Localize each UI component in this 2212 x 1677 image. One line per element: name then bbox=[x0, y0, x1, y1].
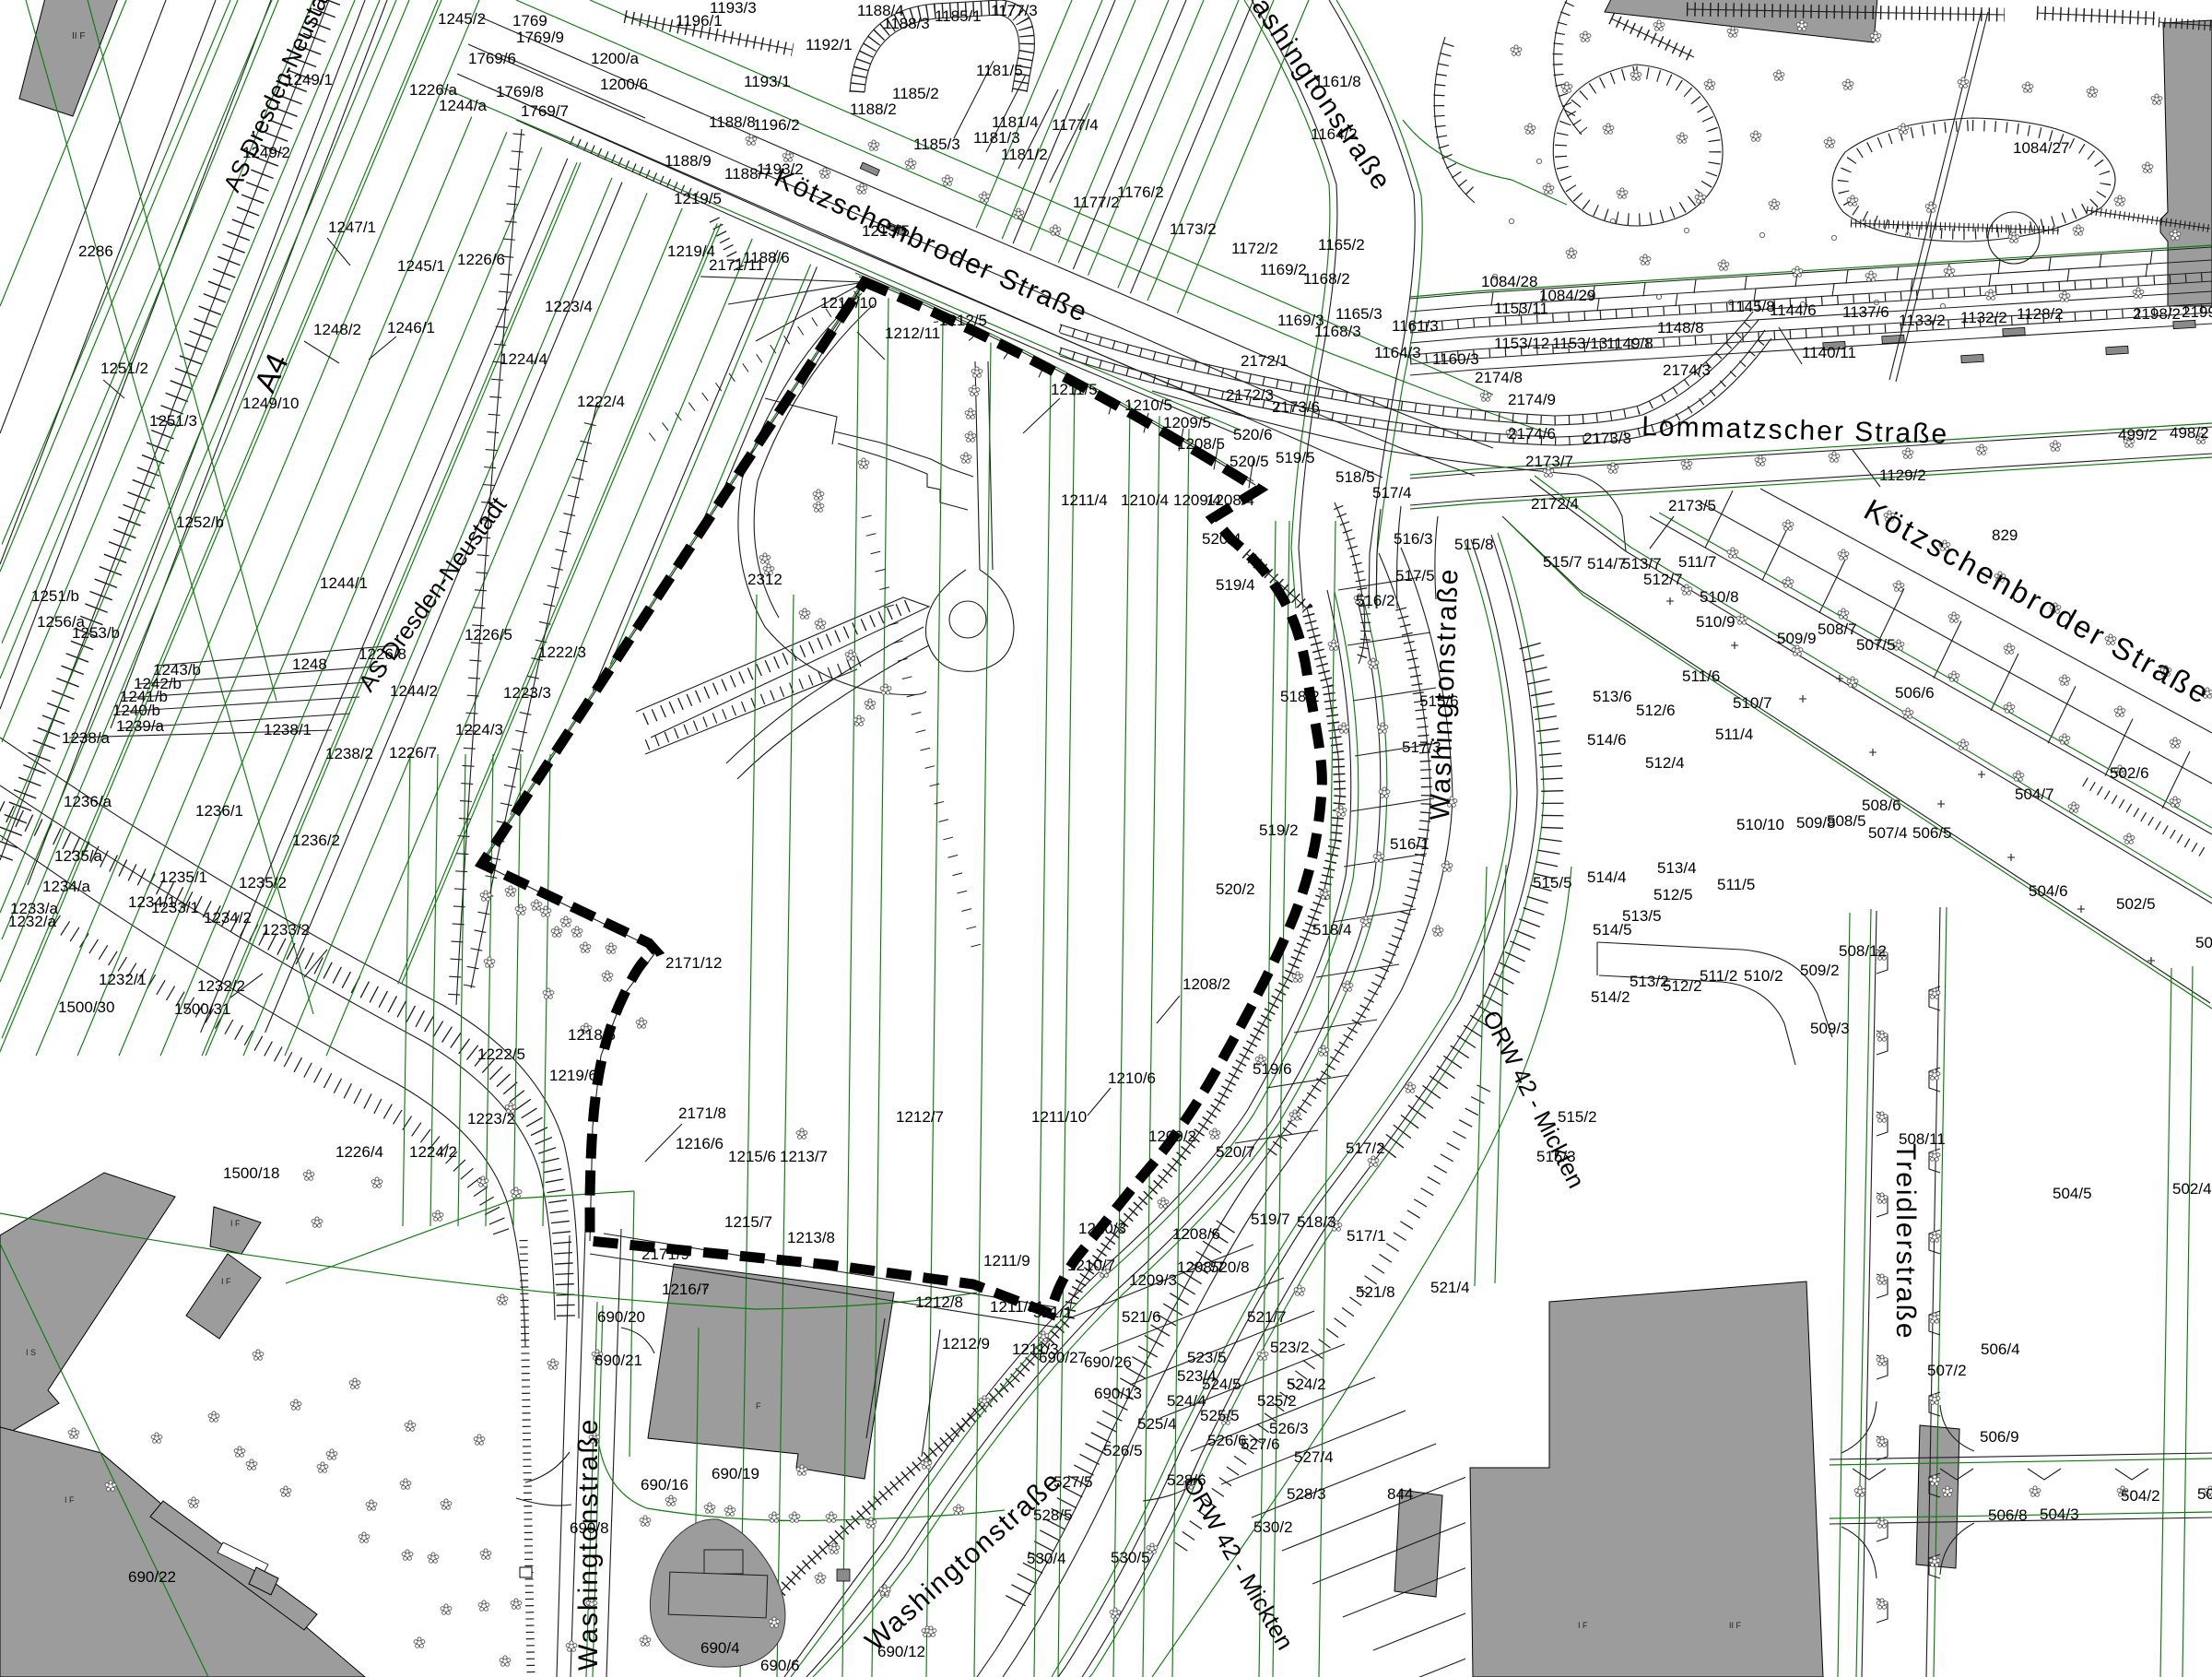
svg-text:1213/8: 1213/8 bbox=[787, 1229, 835, 1246]
svg-text:1185/3: 1185/3 bbox=[913, 136, 960, 153]
svg-text:515/7: 515/7 bbox=[1543, 553, 1583, 571]
svg-text:1212/5: 1212/5 bbox=[939, 312, 987, 329]
svg-text:2172/1: 2172/1 bbox=[1241, 352, 1288, 370]
svg-text:1500/31: 1500/31 bbox=[174, 1000, 230, 1018]
svg-text:1172/2: 1172/2 bbox=[1231, 240, 1278, 257]
svg-text:502/5: 502/5 bbox=[2116, 895, 2156, 913]
svg-text:1211/4: 1211/4 bbox=[1061, 491, 1108, 509]
svg-text:1188/9: 1188/9 bbox=[665, 152, 712, 170]
svg-text:1084/27: 1084/27 bbox=[2013, 139, 2069, 157]
svg-text:519/5: 519/5 bbox=[1276, 449, 1315, 466]
svg-text:516/2: 516/2 bbox=[1356, 592, 1395, 609]
svg-text:1209/3: 1209/3 bbox=[1129, 1271, 1177, 1289]
svg-text:527/5: 527/5 bbox=[1053, 1473, 1093, 1491]
svg-text:1235/2: 1235/2 bbox=[239, 874, 287, 892]
svg-text:507/4: 507/4 bbox=[1868, 824, 1908, 842]
svg-text:1208/6: 1208/6 bbox=[1172, 1225, 1220, 1243]
svg-text:1233/2: 1233/2 bbox=[262, 921, 310, 939]
svg-text:829: 829 bbox=[1992, 526, 2018, 544]
svg-text:507/5: 507/5 bbox=[1856, 636, 1896, 654]
svg-text:1224/3: 1224/3 bbox=[455, 721, 503, 738]
svg-text:1223/3: 1223/3 bbox=[503, 684, 551, 702]
svg-text:517/2: 517/2 bbox=[1346, 1140, 1385, 1157]
svg-text:1185/2: 1185/2 bbox=[892, 85, 939, 102]
svg-text:1249/10: 1249/10 bbox=[242, 395, 299, 412]
svg-text:1244/1: 1244/1 bbox=[320, 574, 368, 592]
svg-text:1248: 1248 bbox=[292, 655, 327, 673]
svg-text:1165/2: 1165/2 bbox=[1318, 236, 1365, 254]
svg-text:504/7: 504/7 bbox=[2015, 785, 2054, 803]
svg-text:521/6: 521/6 bbox=[1122, 1308, 1161, 1326]
svg-text:1128/2: 1128/2 bbox=[2017, 305, 2064, 323]
svg-text:1193/3: 1193/3 bbox=[710, 0, 757, 17]
svg-text:506/8: 506/8 bbox=[1988, 1506, 2028, 1524]
svg-text:2171/12: 2171/12 bbox=[665, 954, 722, 972]
svg-text:515/6: 515/6 bbox=[1419, 692, 1459, 710]
svg-text:525/2: 525/2 bbox=[1257, 1392, 1297, 1410]
svg-text:1181/2: 1181/2 bbox=[1001, 146, 1048, 163]
svg-text:2174/8: 2174/8 bbox=[1475, 369, 1523, 386]
svg-text:519/2: 519/2 bbox=[1259, 821, 1299, 839]
svg-text:502/6: 502/6 bbox=[2110, 764, 2149, 782]
svg-text:521/8: 521/8 bbox=[1356, 1283, 1395, 1301]
svg-text:1251/b: 1251/b bbox=[31, 587, 79, 605]
svg-text:1216/6: 1216/6 bbox=[676, 1135, 724, 1152]
svg-text:518/4: 518/4 bbox=[1312, 921, 1352, 939]
svg-text:1251/2: 1251/2 bbox=[100, 360, 148, 377]
svg-text:1222/4: 1222/4 bbox=[577, 393, 625, 410]
svg-text:1223/2: 1223/2 bbox=[467, 1110, 515, 1128]
svg-text:499/2: 499/2 bbox=[2118, 426, 2158, 443]
svg-text:1208/4: 1208/4 bbox=[1206, 491, 1254, 509]
svg-text:1226/8: 1226/8 bbox=[359, 645, 406, 663]
svg-text:1500/18: 1500/18 bbox=[223, 1164, 279, 1182]
svg-text:1168/3: 1168/3 bbox=[1314, 323, 1361, 340]
svg-text:518/5: 518/5 bbox=[1335, 468, 1375, 486]
svg-text:I F: I F bbox=[699, 1283, 709, 1293]
svg-text:690/20: 690/20 bbox=[597, 1308, 645, 1326]
svg-text:1168/2: 1168/2 bbox=[1303, 270, 1350, 288]
svg-text:690/26: 690/26 bbox=[1084, 1353, 1132, 1371]
svg-text:518/3: 518/3 bbox=[1297, 1213, 1336, 1231]
svg-text:690/16: 690/16 bbox=[641, 1476, 688, 1494]
svg-text:II F: II F bbox=[72, 31, 85, 41]
svg-text:1193/2: 1193/2 bbox=[757, 160, 804, 178]
svg-text:1153/12: 1153/12 bbox=[1494, 335, 1549, 352]
svg-text:516/3: 516/3 bbox=[1394, 530, 1433, 548]
svg-text:514/2: 514/2 bbox=[1591, 988, 1630, 1006]
svg-text:1177/3: 1177/3 bbox=[991, 2, 1038, 19]
svg-text:524/5: 524/5 bbox=[1202, 1376, 1241, 1393]
svg-text:1238/a: 1238/a bbox=[62, 729, 111, 747]
svg-text:1769/6: 1769/6 bbox=[468, 50, 516, 67]
svg-text:518/2: 518/2 bbox=[1280, 688, 1320, 705]
svg-text:509/3: 509/3 bbox=[1810, 1020, 1850, 1037]
svg-text:1153/11: 1153/11 bbox=[1494, 300, 1548, 317]
svg-text:1222/5: 1222/5 bbox=[477, 1045, 525, 1063]
svg-text:690/6: 690/6 bbox=[760, 1657, 800, 1674]
svg-text:1769/9: 1769/9 bbox=[516, 29, 564, 46]
svg-text:2173/3: 2173/3 bbox=[1583, 430, 1631, 447]
svg-text:506/6: 506/6 bbox=[1895, 684, 1935, 702]
svg-text:516/1: 516/1 bbox=[1390, 835, 1430, 853]
svg-text:1144/6: 1144/6 bbox=[1770, 301, 1817, 319]
svg-text:1164/3: 1164/3 bbox=[1374, 344, 1421, 361]
svg-text:1185/1: 1185/1 bbox=[935, 7, 982, 25]
svg-text:1222/3: 1222/3 bbox=[538, 644, 586, 661]
svg-text:690/4: 690/4 bbox=[700, 1639, 740, 1657]
svg-text:1219/5: 1219/5 bbox=[674, 190, 722, 207]
svg-text:520/5: 520/5 bbox=[1230, 453, 1269, 470]
svg-text:519/6: 519/6 bbox=[1253, 1060, 1292, 1078]
svg-text:1181/5: 1181/5 bbox=[976, 62, 1023, 79]
svg-text:507/2: 507/2 bbox=[1927, 1362, 1967, 1379]
svg-text:1165/3: 1165/3 bbox=[1335, 305, 1382, 323]
svg-text:2174/6: 2174/6 bbox=[1508, 425, 1556, 443]
svg-text:1211/9: 1211/9 bbox=[983, 1252, 1030, 1270]
svg-text:1249/1: 1249/1 bbox=[285, 71, 333, 89]
svg-text:1133/2: 1133/2 bbox=[1899, 312, 1946, 329]
svg-text:690/27: 690/27 bbox=[1039, 1349, 1087, 1366]
svg-text:1210/5: 1210/5 bbox=[1124, 396, 1172, 414]
svg-text:504/5: 504/5 bbox=[2053, 1185, 2092, 1202]
svg-text:1211/5: 1211/5 bbox=[1051, 381, 1098, 398]
svg-text:1245/1: 1245/1 bbox=[397, 257, 445, 275]
svg-text:510/7: 510/7 bbox=[1733, 694, 1772, 712]
svg-text:515/8: 515/8 bbox=[1454, 536, 1494, 553]
svg-text:1188/3: 1188/3 bbox=[883, 15, 930, 32]
svg-text:508/7: 508/7 bbox=[1818, 620, 1857, 638]
svg-text:524/2: 524/2 bbox=[1287, 1376, 1326, 1393]
svg-text:530/2: 530/2 bbox=[1253, 1518, 1293, 1536]
svg-text:1224/2: 1224/2 bbox=[409, 1143, 457, 1161]
svg-text:1213/5: 1213/5 bbox=[862, 222, 910, 240]
svg-text:2312: 2312 bbox=[747, 571, 782, 588]
svg-text:690/8: 690/8 bbox=[570, 1519, 609, 1537]
svg-text:1245/2: 1245/2 bbox=[438, 10, 486, 28]
svg-text:1213/10: 1213/10 bbox=[820, 294, 877, 312]
svg-text:1188/2: 1188/2 bbox=[850, 100, 897, 118]
svg-text:517/4: 517/4 bbox=[1372, 484, 1412, 502]
svg-text:1769/7: 1769/7 bbox=[521, 102, 569, 120]
svg-text:1209/5: 1209/5 bbox=[1163, 414, 1211, 431]
svg-text:510/10: 510/10 bbox=[1736, 816, 1784, 833]
svg-text:1236/1: 1236/1 bbox=[195, 802, 243, 820]
svg-text:1176/2: 1176/2 bbox=[1117, 183, 1164, 201]
svg-text:1211/10: 1211/10 bbox=[1031, 1108, 1087, 1126]
svg-text:1236/a: 1236/a bbox=[64, 793, 112, 810]
svg-text:511/5: 511/5 bbox=[1717, 876, 1755, 893]
svg-text:1140/11: 1140/11 bbox=[1802, 344, 1856, 361]
svg-text:690/22: 690/22 bbox=[128, 1568, 176, 1586]
svg-text:2171/9: 2171/9 bbox=[641, 1246, 689, 1263]
svg-text:521/4: 521/4 bbox=[1430, 1279, 1470, 1296]
svg-text:1212/11: 1212/11 bbox=[885, 325, 940, 342]
svg-text:504/4: 504/4 bbox=[2197, 1485, 2212, 1503]
svg-text:690/19: 690/19 bbox=[712, 1465, 759, 1482]
svg-text:514/6: 514/6 bbox=[1587, 731, 1627, 749]
svg-text:504/6: 504/6 bbox=[2029, 882, 2068, 900]
svg-text:1132/2: 1132/2 bbox=[1960, 309, 2007, 326]
svg-text:1164/2: 1164/2 bbox=[1311, 125, 1358, 143]
svg-text:2173/7: 2173/7 bbox=[1525, 453, 1573, 470]
svg-text:690/12: 690/12 bbox=[877, 1643, 925, 1660]
svg-text:513/6: 513/6 bbox=[1593, 688, 1632, 705]
svg-text:520/6: 520/6 bbox=[1233, 426, 1273, 443]
svg-text:1200/6: 1200/6 bbox=[600, 76, 648, 93]
svg-text:506/9: 506/9 bbox=[1980, 1428, 2019, 1446]
svg-text:1226/5: 1226/5 bbox=[465, 626, 512, 644]
svg-text:526/5: 526/5 bbox=[1103, 1442, 1143, 1459]
svg-text:508/5: 508/5 bbox=[1827, 812, 1866, 830]
svg-text:2172/4: 2172/4 bbox=[1531, 495, 1579, 513]
svg-text:1769/8: 1769/8 bbox=[496, 83, 544, 100]
svg-text:1218/5: 1218/5 bbox=[568, 1026, 616, 1044]
svg-text:509/9: 509/9 bbox=[1777, 630, 1817, 647]
svg-text:1169/2: 1169/2 bbox=[1260, 261, 1307, 278]
svg-text:519/7: 519/7 bbox=[1251, 1211, 1290, 1228]
svg-text:II F: II F bbox=[1729, 1621, 1742, 1630]
svg-text:1212/9: 1212/9 bbox=[942, 1335, 990, 1352]
svg-text:520/8: 520/8 bbox=[1210, 1258, 1250, 1276]
svg-text:520/7: 520/7 bbox=[1216, 1143, 1255, 1161]
svg-text:2174/9: 2174/9 bbox=[1508, 391, 1556, 408]
svg-text:I F: I F bbox=[65, 1495, 75, 1505]
svg-text:508/11: 508/11 bbox=[1899, 1130, 1946, 1148]
svg-text:1145/8: 1145/8 bbox=[1728, 298, 1775, 315]
svg-text:1500/30: 1500/30 bbox=[58, 998, 114, 1016]
svg-text:517/1: 517/1 bbox=[1347, 1227, 1386, 1245]
svg-text:1209/2: 1209/2 bbox=[1148, 1128, 1196, 1145]
svg-text:2172/3: 2172/3 bbox=[1226, 386, 1274, 404]
svg-text:1248/2: 1248/2 bbox=[313, 321, 361, 338]
svg-text:527/4: 527/4 bbox=[1294, 1448, 1334, 1466]
svg-text:528/5: 528/5 bbox=[1033, 1506, 1073, 1524]
svg-text:512/7: 512/7 bbox=[1643, 571, 1683, 588]
svg-text:520/2: 520/2 bbox=[1216, 880, 1255, 898]
svg-text:515/3: 515/3 bbox=[1536, 1148, 1576, 1165]
svg-text:I F: I F bbox=[221, 1277, 231, 1286]
svg-text:528/3: 528/3 bbox=[1287, 1485, 1326, 1503]
svg-text:1249/2: 1249/2 bbox=[242, 144, 290, 161]
svg-text:527/6: 527/6 bbox=[1241, 1435, 1280, 1453]
svg-text:523/5: 523/5 bbox=[1187, 1349, 1227, 1366]
svg-text:1210/3: 1210/3 bbox=[1078, 1220, 1126, 1237]
svg-text:511/6: 511/6 bbox=[1682, 667, 1720, 685]
svg-text:1235/a: 1235/a bbox=[54, 847, 103, 865]
svg-text:1232/1: 1232/1 bbox=[99, 971, 147, 988]
svg-text:844: 844 bbox=[1387, 1485, 1413, 1503]
svg-text:528/6: 528/6 bbox=[1167, 1471, 1206, 1489]
svg-text:1769: 1769 bbox=[512, 12, 547, 30]
svg-text:1234/2: 1234/2 bbox=[204, 909, 252, 927]
svg-text:1223/4: 1223/4 bbox=[545, 298, 593, 315]
svg-text:1084/28: 1084/28 bbox=[1481, 273, 1537, 290]
svg-text:1226/6: 1226/6 bbox=[457, 251, 505, 268]
svg-text:504/3: 504/3 bbox=[2040, 1506, 2079, 1523]
svg-text:1246/1: 1246/1 bbox=[387, 319, 435, 337]
svg-text:1208/5: 1208/5 bbox=[1177, 435, 1225, 453]
svg-text:1210/7: 1210/7 bbox=[1067, 1257, 1115, 1274]
svg-text:498/2: 498/2 bbox=[2170, 424, 2209, 442]
svg-text:Treidlerstraße: Treidlerstraße bbox=[1890, 1143, 1921, 1340]
svg-text:Washingtonstraße: Washingtonstraße bbox=[573, 1418, 604, 1671]
svg-text:504/2: 504/2 bbox=[2121, 1487, 2160, 1505]
svg-text:I F: I F bbox=[1578, 1621, 1588, 1630]
svg-text:1160/3: 1160/3 bbox=[1432, 350, 1479, 368]
svg-text:1226/4: 1226/4 bbox=[335, 1143, 383, 1161]
svg-text:501/5: 501/5 bbox=[2195, 934, 2212, 951]
svg-text:1226/7: 1226/7 bbox=[389, 744, 437, 762]
svg-text:517/3: 517/3 bbox=[1402, 738, 1441, 756]
svg-text:510/8: 510/8 bbox=[1700, 588, 1739, 606]
svg-text:1208/2: 1208/2 bbox=[1182, 975, 1230, 993]
svg-text:523/2: 523/2 bbox=[1270, 1339, 1310, 1356]
svg-text:506/4: 506/4 bbox=[1981, 1340, 2020, 1358]
svg-text:2198/2: 2198/2 bbox=[2133, 305, 2181, 323]
svg-text:1149/8: 1149/8 bbox=[1606, 335, 1653, 352]
svg-text:512/6: 512/6 bbox=[1636, 702, 1676, 719]
svg-text:506/5: 506/5 bbox=[1912, 824, 1952, 842]
svg-text:508/6: 508/6 bbox=[1862, 797, 1901, 814]
svg-text:1238/1: 1238/1 bbox=[264, 721, 312, 738]
svg-text:2199/2: 2199/2 bbox=[2182, 303, 2212, 321]
svg-text:1215/7: 1215/7 bbox=[724, 1213, 772, 1231]
svg-text:1244/2: 1244/2 bbox=[390, 682, 438, 700]
svg-text:525/5: 525/5 bbox=[1200, 1407, 1240, 1424]
svg-text:690/13: 690/13 bbox=[1094, 1385, 1142, 1402]
svg-text:1193/1: 1193/1 bbox=[744, 73, 791, 90]
svg-text:1232/a: 1232/a bbox=[8, 913, 57, 930]
svg-text:2173/5: 2173/5 bbox=[1668, 497, 1716, 514]
svg-text:1251/3: 1251/3 bbox=[149, 412, 197, 430]
svg-text:2173/6: 2173/6 bbox=[1272, 398, 1320, 416]
svg-text:514/7: 514/7 bbox=[1587, 555, 1627, 573]
svg-text:1212/7: 1212/7 bbox=[896, 1108, 944, 1126]
svg-text:1161/8: 1161/8 bbox=[1314, 73, 1361, 90]
svg-text:1161/3: 1161/3 bbox=[1392, 317, 1439, 335]
svg-text:520/4: 520/4 bbox=[1202, 530, 1241, 548]
svg-text:509/2: 509/2 bbox=[1800, 962, 1840, 979]
svg-text:1236/2: 1236/2 bbox=[292, 832, 340, 849]
svg-text:513/4: 513/4 bbox=[1657, 859, 1697, 877]
svg-text:1129/2: 1129/2 bbox=[1879, 466, 1926, 484]
svg-text:I S: I S bbox=[26, 1348, 36, 1357]
svg-text:1153/13: 1153/13 bbox=[1552, 335, 1607, 352]
svg-text:530/5: 530/5 bbox=[1111, 1549, 1150, 1566]
svg-text:1212/8: 1212/8 bbox=[915, 1293, 963, 1311]
svg-text:511/4: 511/4 bbox=[1715, 726, 1753, 743]
svg-text:1235/1: 1235/1 bbox=[159, 868, 207, 886]
svg-text:1188/8: 1188/8 bbox=[709, 113, 756, 131]
svg-text:1200/a: 1200/a bbox=[591, 50, 640, 67]
svg-text:1244/a: 1244/a bbox=[439, 97, 488, 114]
svg-text:1196/2: 1196/2 bbox=[753, 116, 800, 134]
svg-text:514/5: 514/5 bbox=[1593, 921, 1632, 939]
svg-text:508/12: 508/12 bbox=[1839, 942, 1887, 960]
svg-text:1215/6: 1215/6 bbox=[728, 1148, 776, 1165]
svg-text:512/4: 512/4 bbox=[1645, 754, 1685, 772]
svg-text:1177/2: 1177/2 bbox=[1073, 194, 1120, 211]
svg-text:511/2: 511/2 bbox=[1700, 967, 1737, 985]
svg-text:2174/3: 2174/3 bbox=[1663, 361, 1711, 379]
svg-text:521/7: 521/7 bbox=[1247, 1308, 1287, 1326]
svg-text:517/5: 517/5 bbox=[1395, 567, 1435, 585]
svg-text:1148/8: 1148/8 bbox=[1657, 319, 1704, 337]
svg-text:1219/6: 1219/6 bbox=[549, 1067, 597, 1084]
svg-text:1210/4: 1210/4 bbox=[1121, 491, 1169, 509]
svg-text:511/7: 511/7 bbox=[1678, 553, 1716, 571]
svg-text:1181/3: 1181/3 bbox=[973, 129, 1020, 147]
svg-text:515/2: 515/2 bbox=[1558, 1108, 1597, 1126]
svg-text:1177/4: 1177/4 bbox=[1052, 116, 1099, 134]
svg-text:1252/b: 1252/b bbox=[176, 514, 224, 531]
svg-text:1173/2: 1173/2 bbox=[1170, 220, 1217, 238]
svg-text:F: F bbox=[756, 1401, 761, 1411]
svg-text:1188/6: 1188/6 bbox=[743, 249, 790, 266]
svg-text:1238/2: 1238/2 bbox=[325, 745, 373, 762]
svg-text:1239/a: 1239/a bbox=[116, 717, 165, 735]
svg-text:519/4: 519/4 bbox=[1216, 576, 1255, 594]
svg-text:1233/1: 1233/1 bbox=[151, 899, 199, 916]
svg-text:513/2: 513/2 bbox=[1630, 973, 1669, 990]
svg-text:525/4: 525/4 bbox=[1137, 1415, 1177, 1433]
svg-text:1210/6: 1210/6 bbox=[1108, 1069, 1156, 1087]
svg-text:2171/8: 2171/8 bbox=[678, 1104, 726, 1122]
svg-text:690/21: 690/21 bbox=[594, 1352, 642, 1369]
svg-text:1234/a: 1234/a bbox=[42, 878, 91, 895]
svg-text:514/4: 514/4 bbox=[1587, 868, 1627, 886]
svg-text:2286: 2286 bbox=[78, 242, 113, 260]
svg-text:1192/1: 1192/1 bbox=[806, 36, 853, 53]
svg-text:1224/4: 1224/4 bbox=[500, 350, 547, 368]
svg-text:510/2: 510/2 bbox=[1744, 967, 1783, 985]
svg-text:521/1: 521/1 bbox=[1033, 1304, 1073, 1321]
svg-text:502/4: 502/4 bbox=[2172, 1180, 2212, 1198]
svg-text:1137/6: 1137/6 bbox=[1842, 303, 1889, 321]
svg-text:1247/1: 1247/1 bbox=[328, 218, 376, 236]
svg-text:1253/b: 1253/b bbox=[72, 624, 120, 642]
svg-text:515/5: 515/5 bbox=[1533, 874, 1572, 892]
svg-text:I F: I F bbox=[230, 1219, 241, 1228]
svg-text:1213/7: 1213/7 bbox=[780, 1148, 828, 1165]
svg-text:512/5: 512/5 bbox=[1653, 886, 1693, 903]
svg-text:510/9: 510/9 bbox=[1696, 613, 1735, 631]
svg-text:530/4: 530/4 bbox=[1027, 1550, 1066, 1567]
